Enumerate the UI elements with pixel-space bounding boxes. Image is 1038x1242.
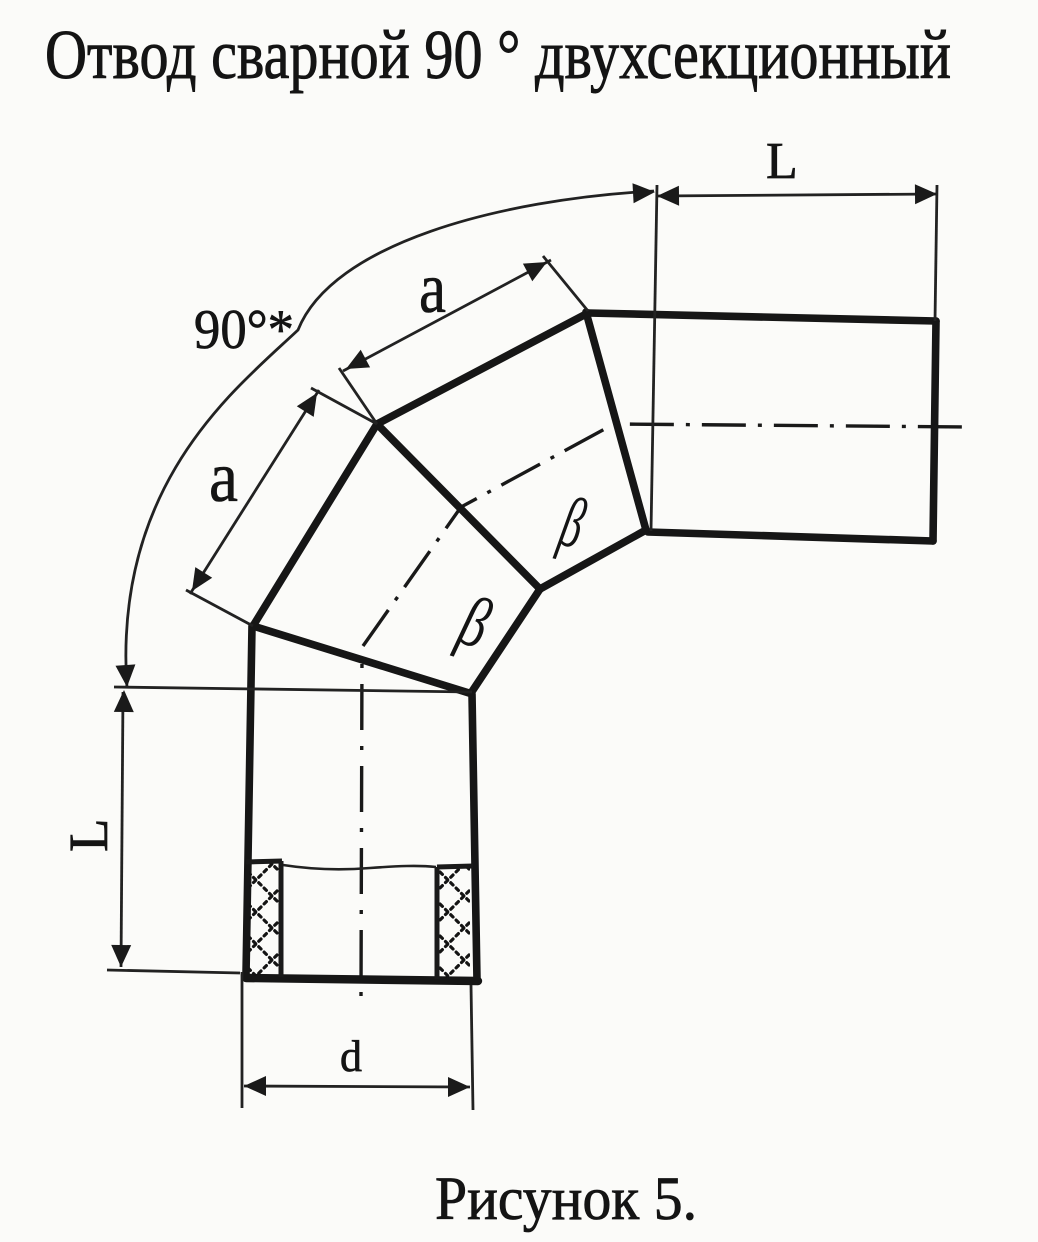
- svg-text:Отвод сварной 90 ° двухсекцион: Отвод сварной 90 ° двухсекционный: [45, 17, 951, 94]
- svg-text:a: a: [419, 248, 446, 328]
- svg-text:L: L: [58, 818, 119, 852]
- svg-text:Рисунок 5.: Рисунок 5.: [435, 1166, 697, 1233]
- svg-text:β: β: [449, 579, 501, 664]
- svg-text:a: a: [209, 437, 238, 517]
- svg-text:L: L: [766, 133, 798, 190]
- svg-text:β: β: [552, 482, 593, 564]
- svg-text:d: d: [340, 1032, 362, 1081]
- svg-text:90°*: 90°*: [194, 299, 294, 361]
